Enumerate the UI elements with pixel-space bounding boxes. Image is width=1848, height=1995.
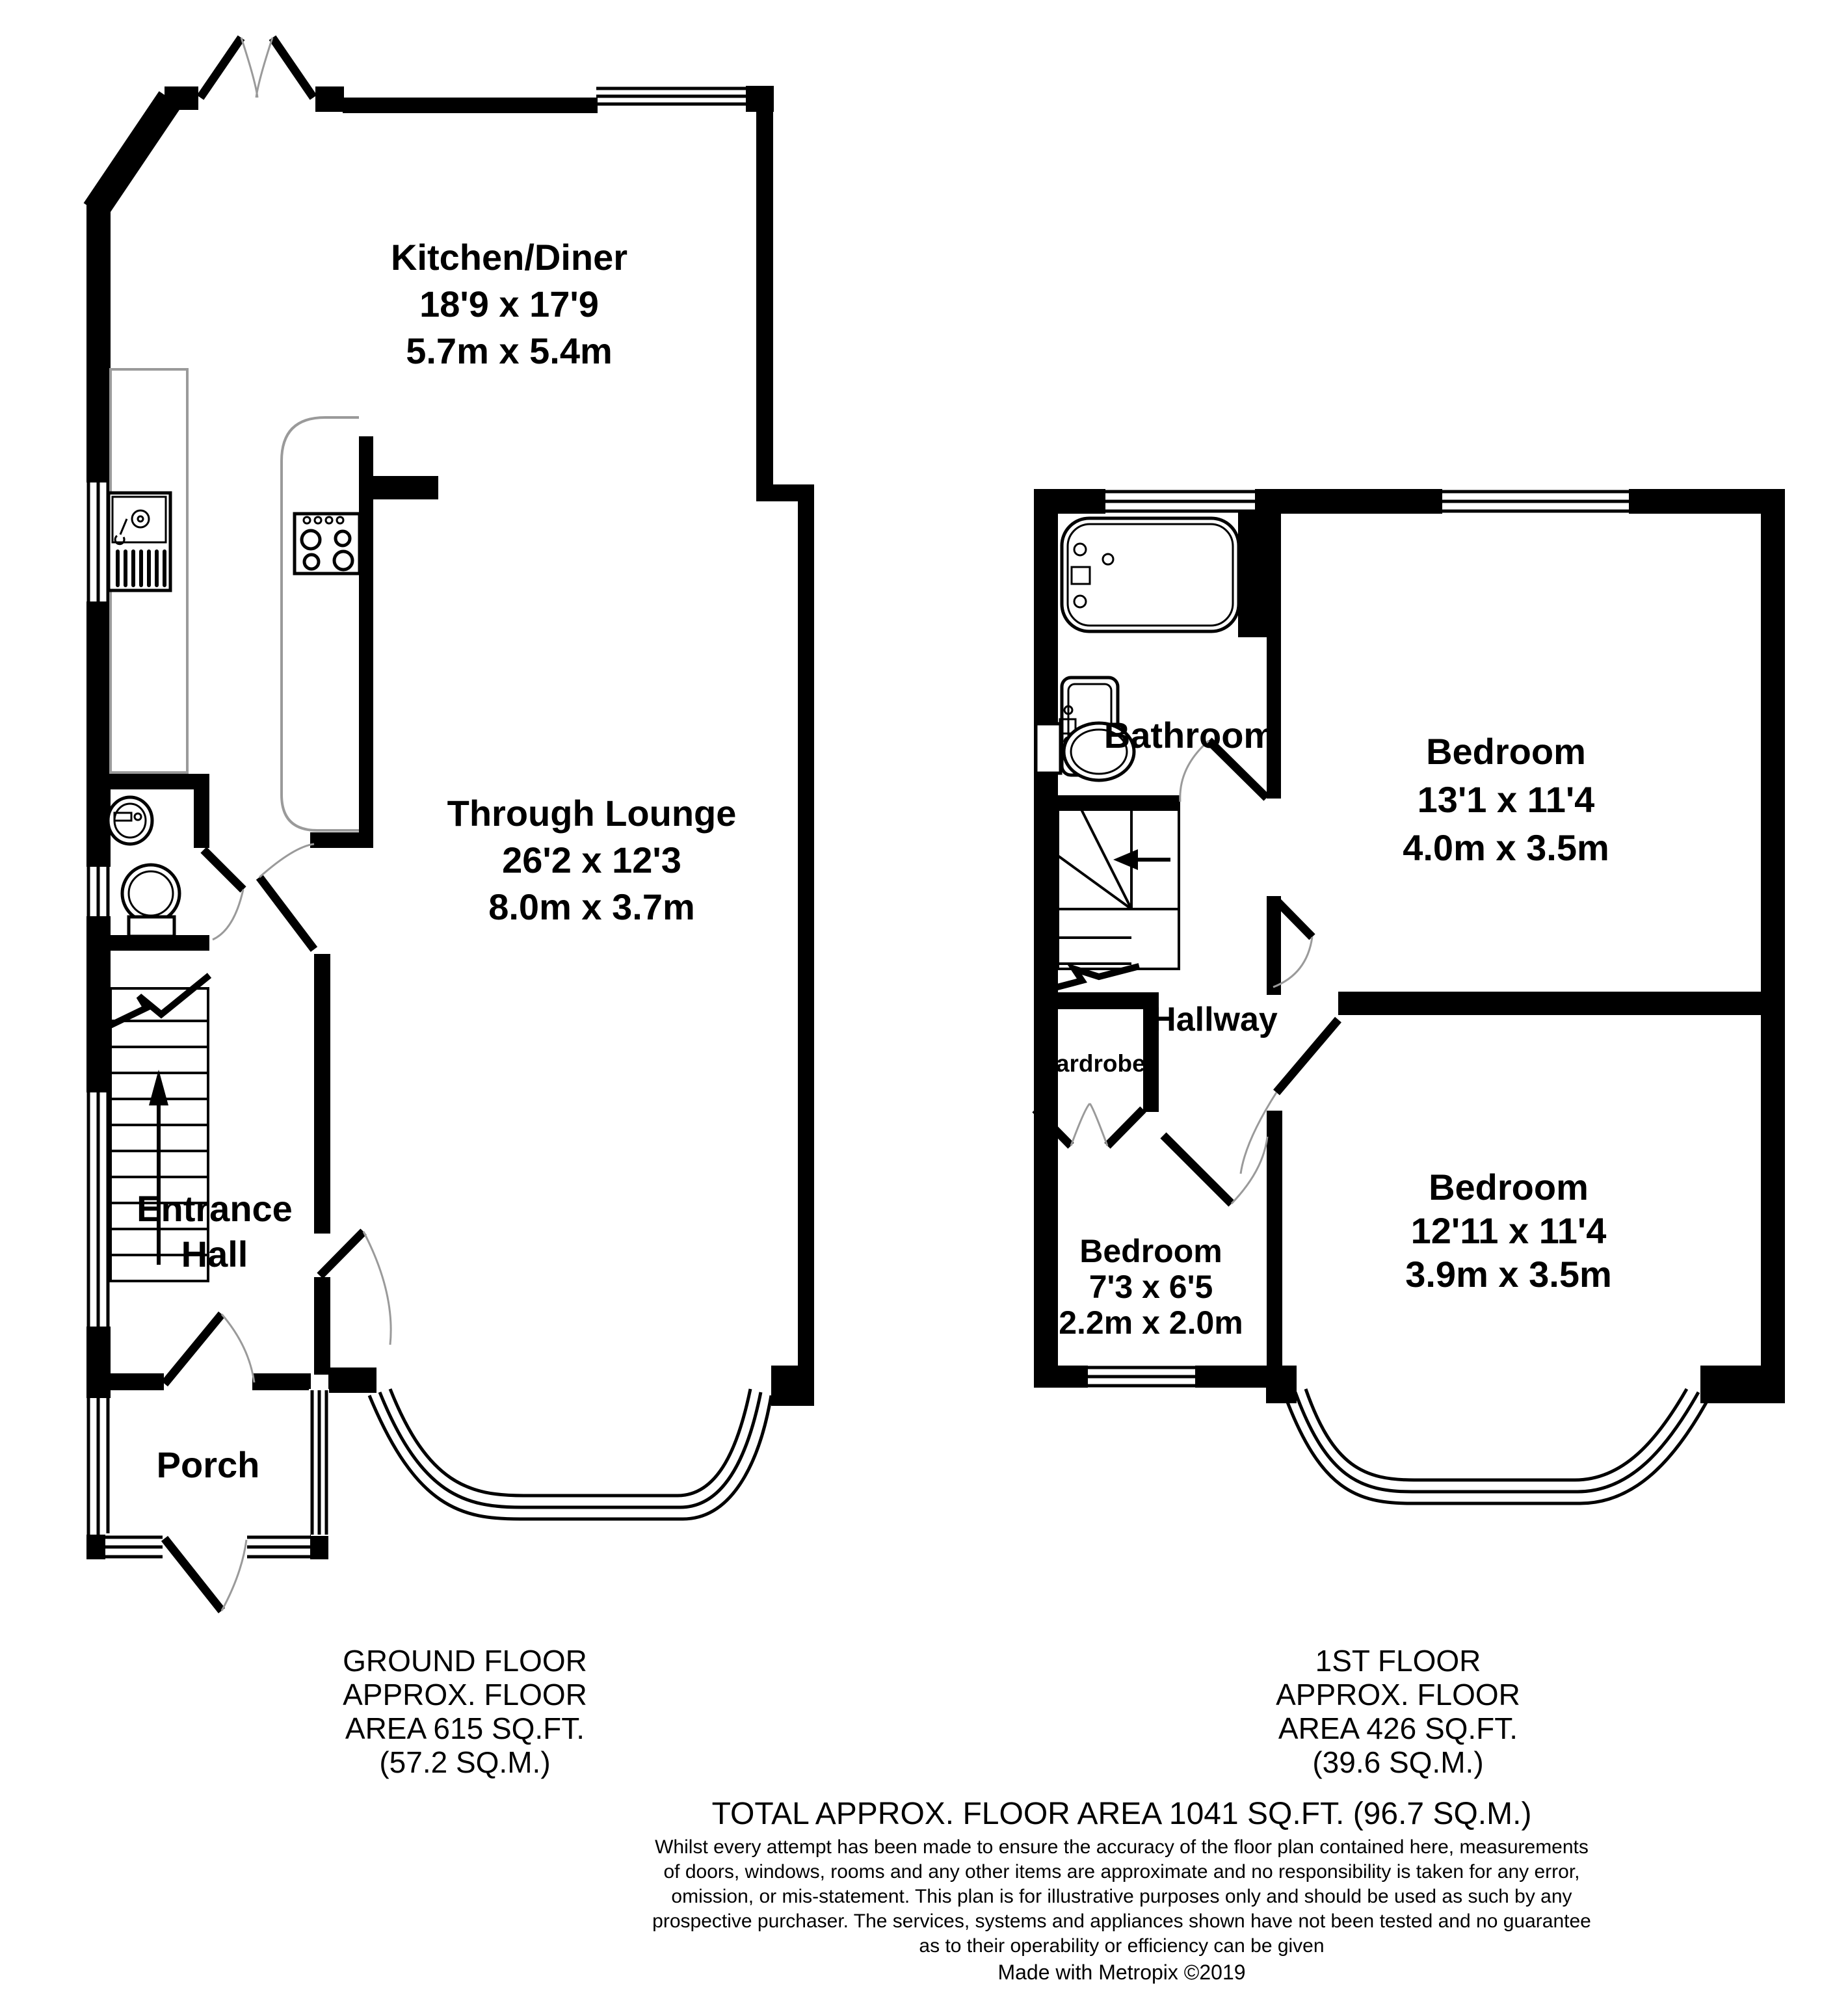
- bedroom1-door: [1241, 1020, 1338, 1174]
- french-doors: [200, 38, 313, 98]
- bedroom2-window: [1088, 1364, 1195, 1389]
- lounge-bay-window: [369, 1389, 771, 1519]
- ground-summary-line2: APPROX. FLOOR: [343, 1678, 587, 1711]
- hallway-label: Hallway: [1152, 1001, 1278, 1038]
- first-stairs-icon: [1042, 810, 1179, 991]
- bedroom3-label: Bedroom: [1429, 1167, 1589, 1208]
- bedroom2-dims-imperial: 7'3 x 6'5: [1089, 1269, 1213, 1305]
- floorplan-page: Kitchen/Diner 18'9 x 17'9 5.7m x 5.4m Th…: [0, 0, 1848, 1995]
- ground-floor-summary: GROUND FLOOR APPROX. FLOOR AREA 615 SQ.F…: [343, 1644, 587, 1779]
- bedroom1-label: Bedroom: [1426, 731, 1586, 772]
- footer: GROUND FLOOR APPROX. FLOOR AREA 615 SQ.F…: [343, 1644, 1591, 1984]
- disclaimer-line-3: omission, or mis-statement. This plan is…: [671, 1886, 1572, 1907]
- first-summary-line3: AREA 426 SQ.FT.: [1278, 1711, 1518, 1745]
- bath-icon: [1062, 518, 1239, 631]
- through-lounge-dims-metric: 8.0m x 3.7m: [488, 886, 695, 927]
- total-floor-area: TOTAL APPROX. FLOOR AREA 1041 SQ.FT. (96…: [712, 1797, 1532, 1831]
- kitchen-sink-icon: [109, 493, 170, 590]
- first-floor-plan: Bathroom Bedroom 13'1 x 11'4 4.0m x 3.5m…: [1034, 488, 1785, 1503]
- first-summary-line2: APPROX. FLOOR: [1276, 1678, 1520, 1711]
- porch-label: Porch: [157, 1444, 260, 1485]
- bedroom3-bay-window: [1285, 1389, 1710, 1503]
- floorplan-canvas: Kitchen/Diner 18'9 x 17'9 5.7m x 5.4m Th…: [0, 0, 1848, 1995]
- first-summary-line1: 1ST FLOOR: [1315, 1644, 1481, 1678]
- stairs-down-arrow-icon: [1113, 849, 1170, 870]
- lounge-door: [320, 1232, 391, 1345]
- wc-door: [204, 850, 243, 940]
- front-door: [165, 1314, 254, 1384]
- kitchen-diner-dims-imperial: 18'9 x 17'9: [419, 284, 599, 324]
- bedroom1-dims-imperial: 13'1 x 11'4: [1418, 779, 1595, 820]
- first-summary-line4: (39.6 SQ.M.): [1312, 1745, 1483, 1779]
- bedroom2-label: Bedroom: [1079, 1233, 1222, 1269]
- stairs-up-arrow-icon: [149, 1070, 168, 1265]
- bathroom-label: Bathroom: [1104, 715, 1276, 756]
- ground-summary-line4: (57.2 SQ.M.): [379, 1745, 550, 1779]
- through-lounge-label: Through Lounge: [447, 793, 737, 834]
- disclaimer: Whilst every attempt has been made to en…: [652, 1836, 1591, 1984]
- kitchen-counter: [111, 369, 359, 830]
- kitchen-top-window: [596, 88, 746, 104]
- kitchen-corridor-door: [259, 844, 314, 949]
- entrance-hall-label-line1: Entrance: [137, 1188, 293, 1229]
- disclaimer-line-2: of doors, windows, rooms and any other i…: [663, 1861, 1579, 1883]
- bedroom3-dims-imperial: 12'11 x 11'4: [1411, 1210, 1607, 1251]
- bedroom1-dims-metric: 4.0m x 3.5m: [1403, 827, 1609, 868]
- entrance-hall-label-line2: Hall: [181, 1234, 248, 1275]
- kitchen-diner-label: Kitchen/Diner: [391, 237, 627, 278]
- disclaimer-line-1: Whilst every attempt has been made to en…: [655, 1836, 1589, 1858]
- ground-floor-plan: Kitchen/Diner 18'9 x 17'9 5.7m x 5.4m Th…: [85, 38, 814, 1611]
- wc-basin-icon: [108, 797, 152, 844]
- kitchen-diner-dims-metric: 5.7m x 5.4m: [406, 330, 613, 371]
- stove-icon: [295, 514, 360, 574]
- bedroom2-dims-metric: 2.2m x 2.0m: [1059, 1304, 1243, 1341]
- first-floor-summary: 1ST FLOOR APPROX. FLOOR AREA 426 SQ.FT. …: [1276, 1644, 1520, 1779]
- bedroom3-dims-metric: 3.9m x 3.5m: [1405, 1254, 1612, 1295]
- metropix-credit: Made with Metropix ©2019: [997, 1961, 1245, 1984]
- through-lounge-dims-imperial: 26'2 x 12'3: [502, 839, 681, 880]
- ground-summary-line3: AREA 615 SQ.FT.: [345, 1711, 585, 1745]
- bedroom2-door: [1163, 1135, 1267, 1204]
- disclaimer-line-5: as to their operability or efficiency ca…: [919, 1935, 1324, 1957]
- ground-summary-line1: GROUND FLOOR: [343, 1644, 587, 1678]
- wc-toilet-icon: [122, 865, 179, 936]
- ground-room-labels: Kitchen/Diner 18'9 x 17'9 5.7m x 5.4m Th…: [137, 237, 736, 1485]
- wardrobe-label: Wardrobe: [1034, 1050, 1145, 1077]
- disclaimer-line-4: prospective purchaser. The services, sys…: [652, 1910, 1591, 1932]
